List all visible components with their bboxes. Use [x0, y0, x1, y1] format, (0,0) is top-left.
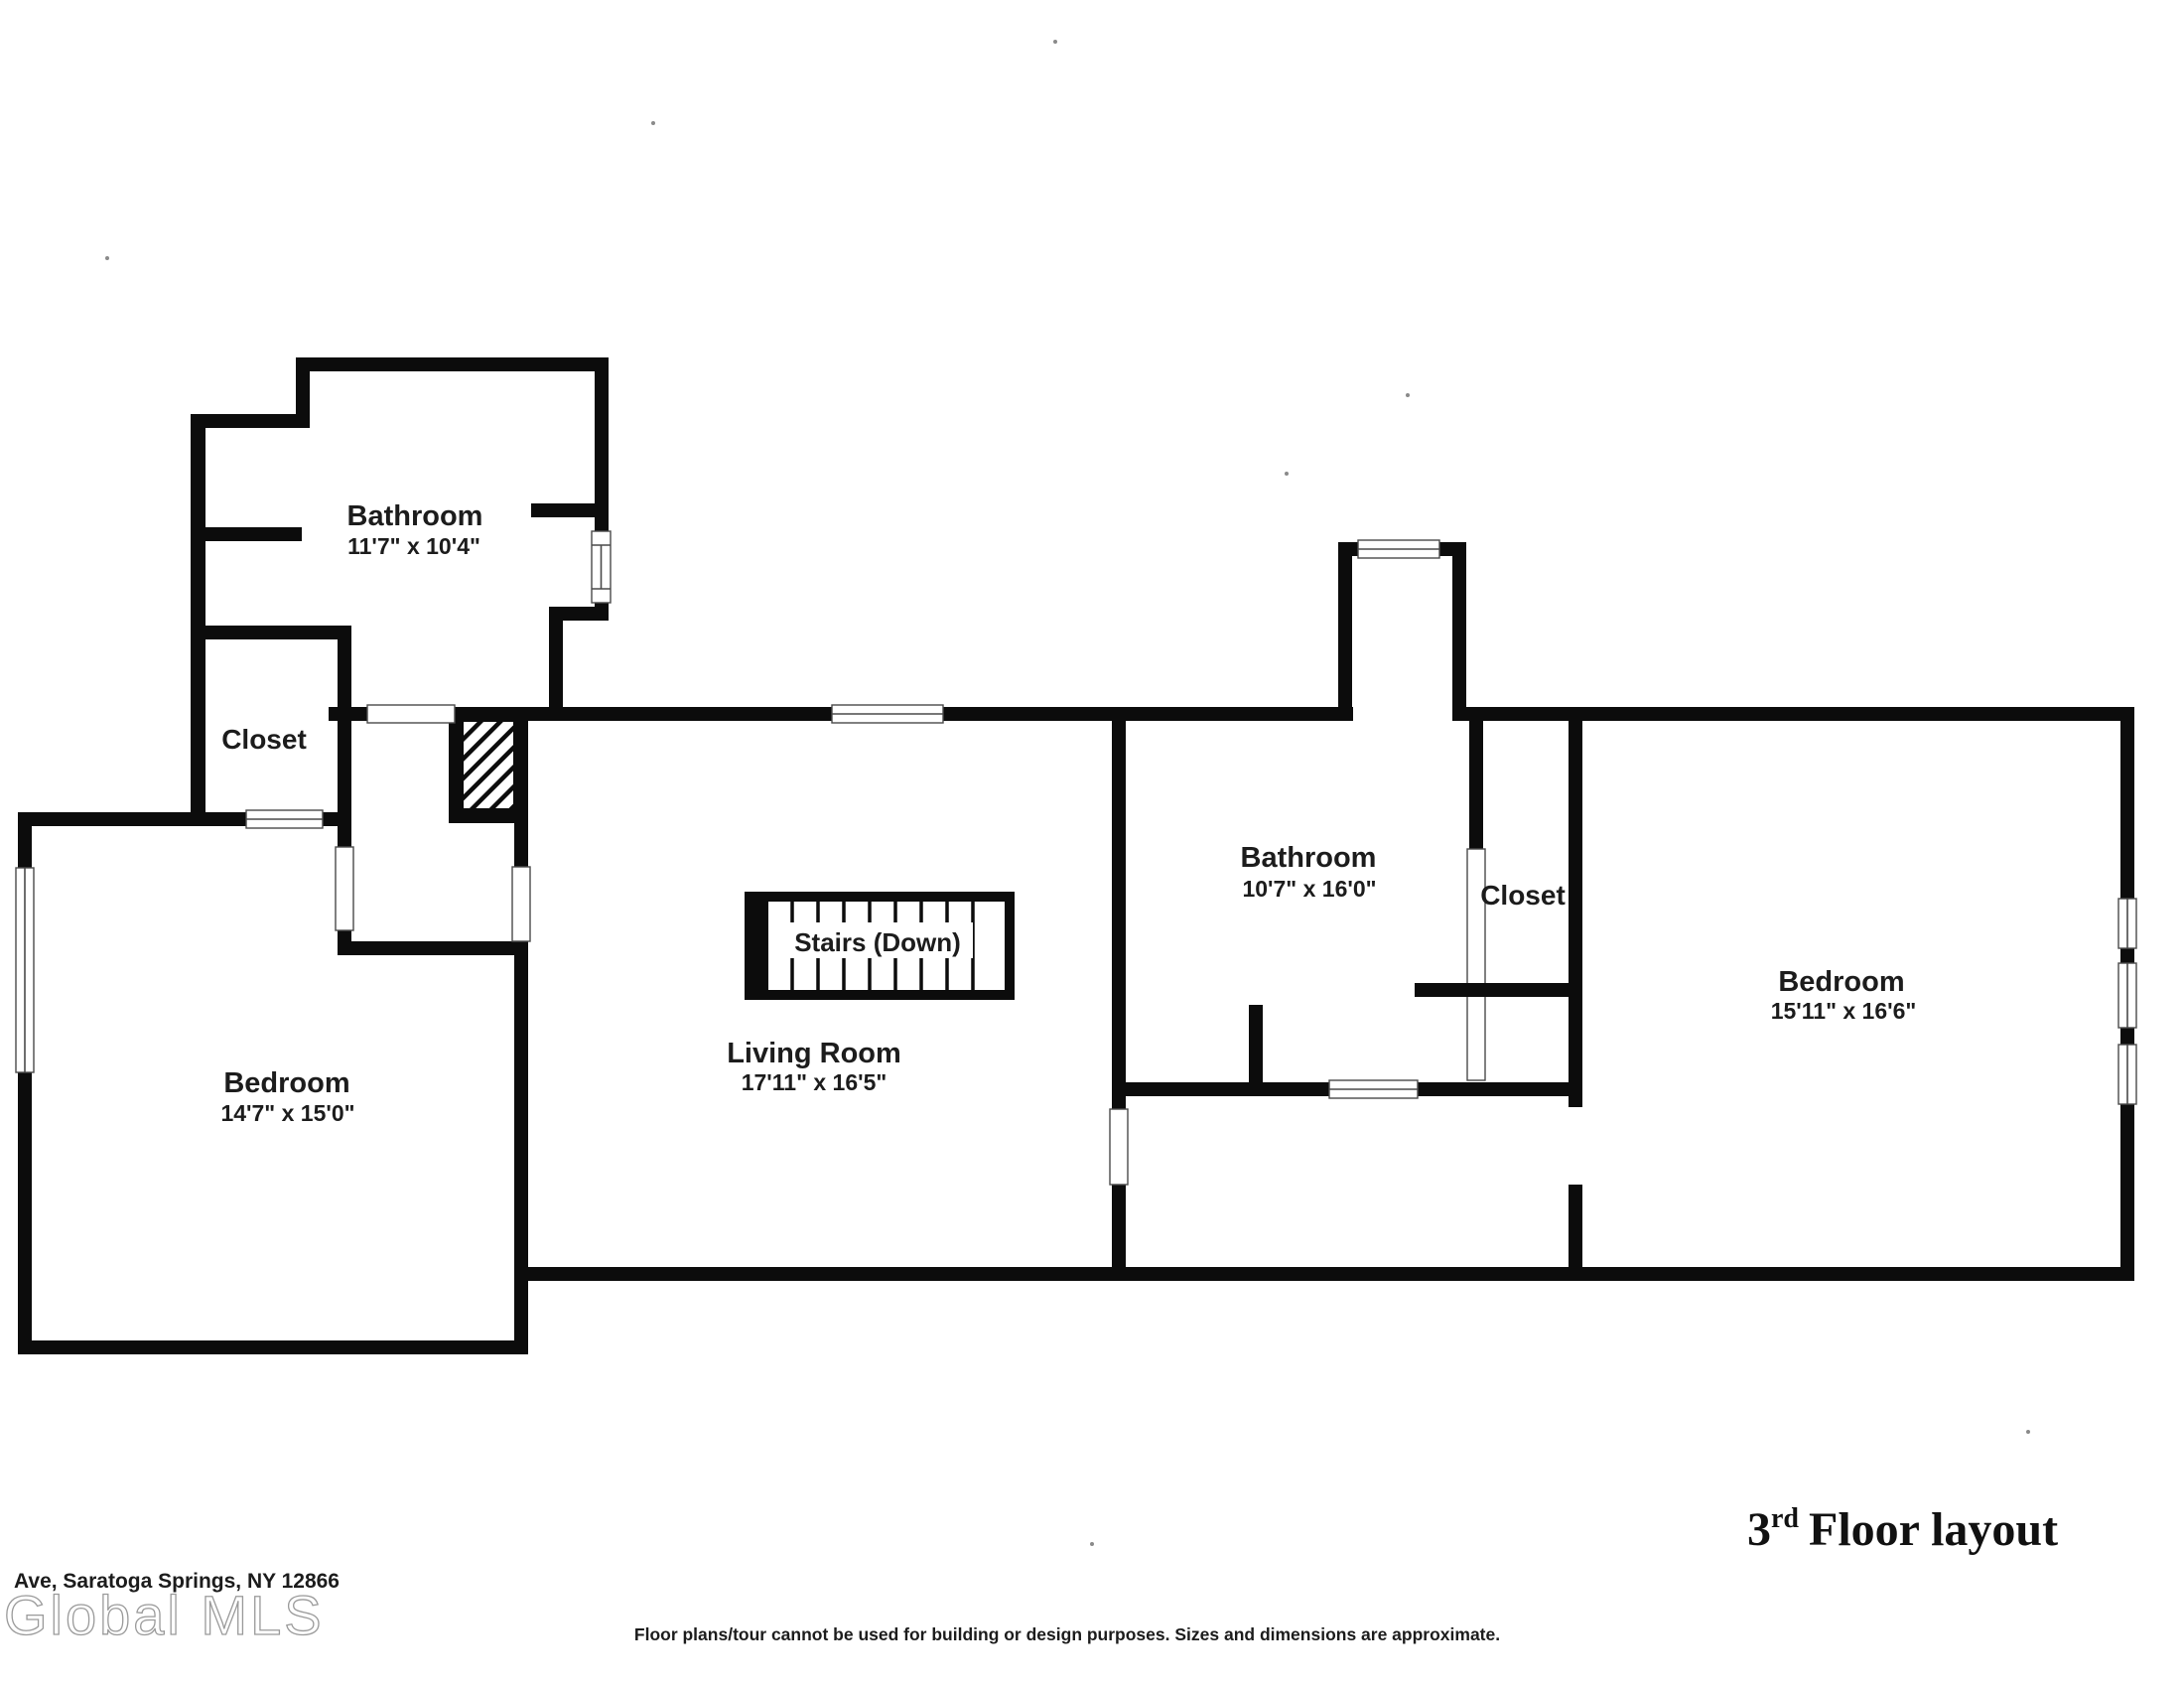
room-dims-bathroom-upper: 11'7" x 10'4" — [347, 533, 480, 559]
wall-segment — [531, 503, 595, 517]
window — [832, 705, 943, 723]
wall-segment — [338, 941, 528, 955]
wall-segment — [1112, 1185, 1126, 1281]
wall-segment — [191, 626, 338, 639]
door-opening — [1110, 1109, 1128, 1185]
window — [2118, 899, 2136, 948]
floor-plan-svg: Stairs (Down) Bathroom 11'7" x 10'4" Clo… — [0, 0, 2184, 1688]
room-label-bedroom-right: Bedroom — [1778, 966, 1904, 998]
room-dims-living-room: 17'11" x 16'5" — [742, 1069, 887, 1095]
wall-segment — [191, 414, 310, 428]
room-label-closet-upper: Closet — [221, 724, 307, 755]
wall-segment — [1569, 707, 1582, 1107]
wall-segment — [191, 527, 302, 541]
room-dims-bedroom-right: 15'11" x 16'6" — [1771, 998, 1917, 1024]
room-label-closet-right: Closet — [1480, 880, 1566, 911]
wall-segment — [296, 357, 608, 371]
room-dims-bedroom-left: 14'7" x 15'0" — [220, 1100, 354, 1126]
room-label-bedroom-left: Bedroom — [223, 1067, 349, 1099]
window — [1329, 1080, 1418, 1098]
wall-segment — [1415, 983, 1582, 997]
wall-segment — [1112, 707, 1126, 1109]
wall-segment — [1452, 707, 2134, 721]
room-label-bathroom-right: Bathroom — [1241, 842, 1377, 874]
wall-segment — [549, 607, 563, 721]
room-label-bathroom-upper: Bathroom — [347, 500, 483, 532]
page-title: 3rdFloor layout — [1747, 1503, 2058, 1556]
disclaimer-text: Floor plans/tour cannot be used for buil… — [634, 1624, 1500, 1644]
chimney-hatch — [463, 721, 514, 809]
wall-segment — [1469, 707, 1483, 849]
stairs-label: Stairs (Down) — [794, 927, 961, 957]
window — [1358, 540, 1439, 558]
window — [2118, 1045, 2136, 1104]
wall-segment — [191, 414, 205, 826]
wall-segment — [1338, 542, 1352, 721]
room-dims-bathroom-right: 10'7" x 16'0" — [1242, 876, 1376, 902]
window — [16, 868, 34, 1072]
door-opening — [367, 705, 455, 723]
window — [246, 810, 323, 828]
wall-segment — [449, 809, 528, 823]
floor-plan-page: Stairs (Down) Bathroom 11'7" x 10'4" Clo… — [0, 0, 2184, 1688]
scan-specks — [105, 40, 2030, 1546]
wall-segment — [1452, 542, 1466, 721]
window — [2118, 963, 2136, 1028]
wall-segment — [514, 941, 528, 1354]
wall-segment — [1569, 1185, 1582, 1281]
room-label-living-room: Living Room — [727, 1038, 901, 1069]
window — [592, 531, 611, 603]
wall-segment — [514, 707, 528, 867]
door-opening — [512, 867, 530, 941]
wall-segment — [18, 1340, 528, 1354]
wall-segment — [1249, 1005, 1263, 1089]
global-mls-watermark: Global MLS — [4, 1584, 325, 1646]
door-opening — [336, 847, 353, 930]
wall-segment — [514, 1267, 2134, 1281]
staircase: Stairs (Down) — [745, 892, 1015, 1000]
